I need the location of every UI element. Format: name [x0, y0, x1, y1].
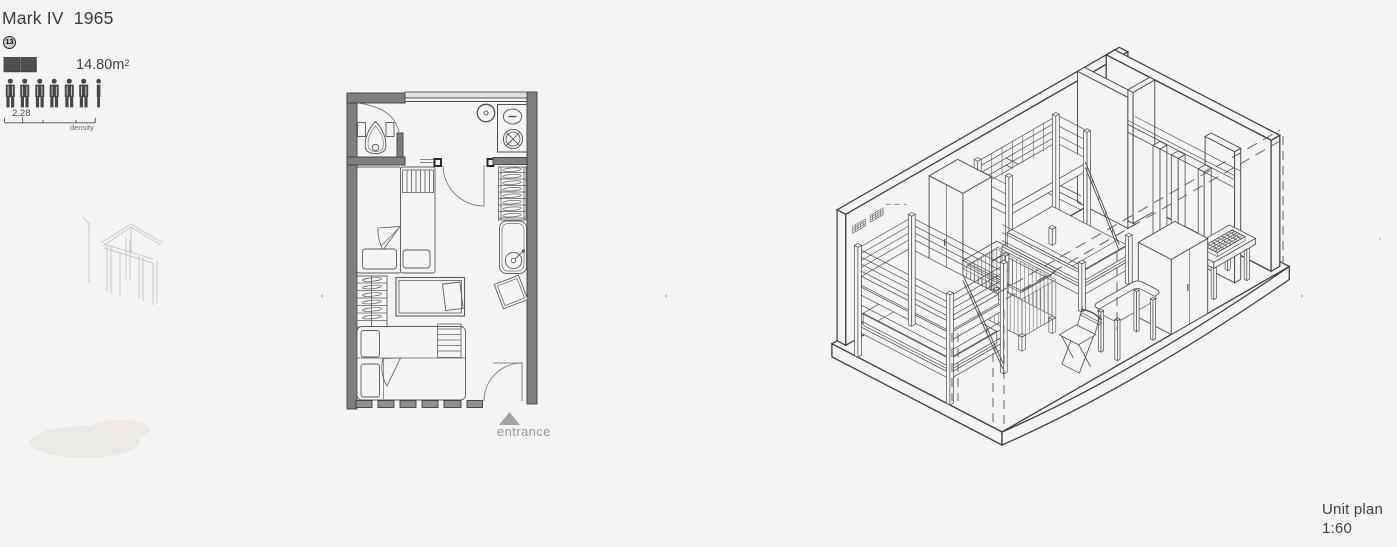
svg-text:entrance: entrance [497, 424, 551, 439]
